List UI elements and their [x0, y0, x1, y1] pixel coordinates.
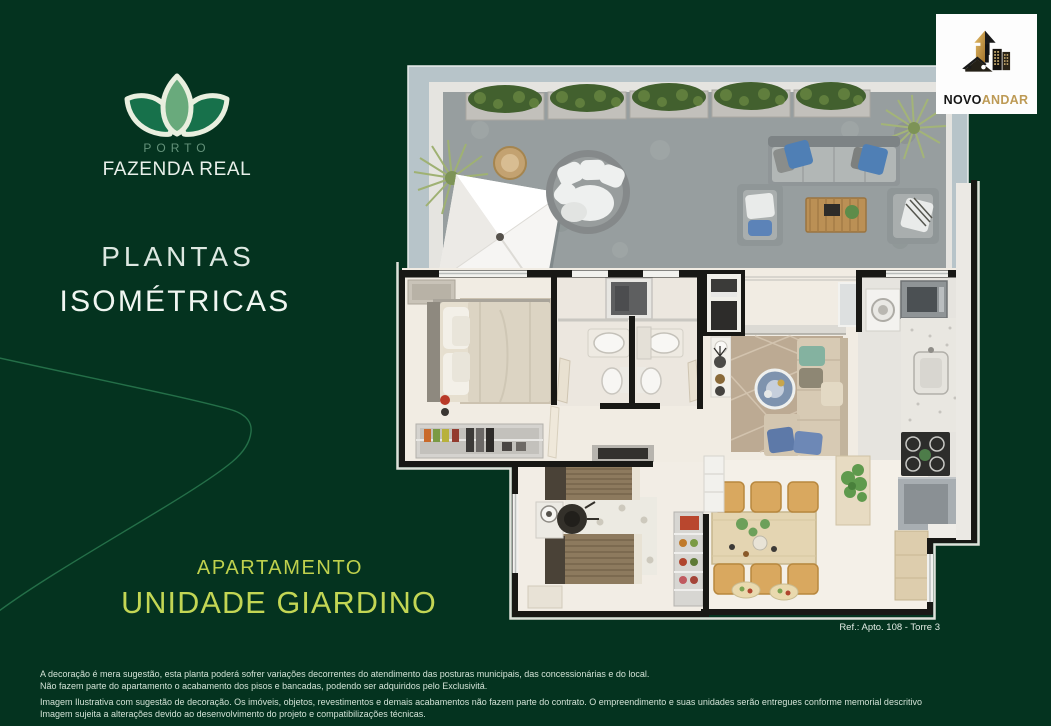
svg-text:NOVOANDAR: NOVOANDAR — [944, 93, 1029, 107]
